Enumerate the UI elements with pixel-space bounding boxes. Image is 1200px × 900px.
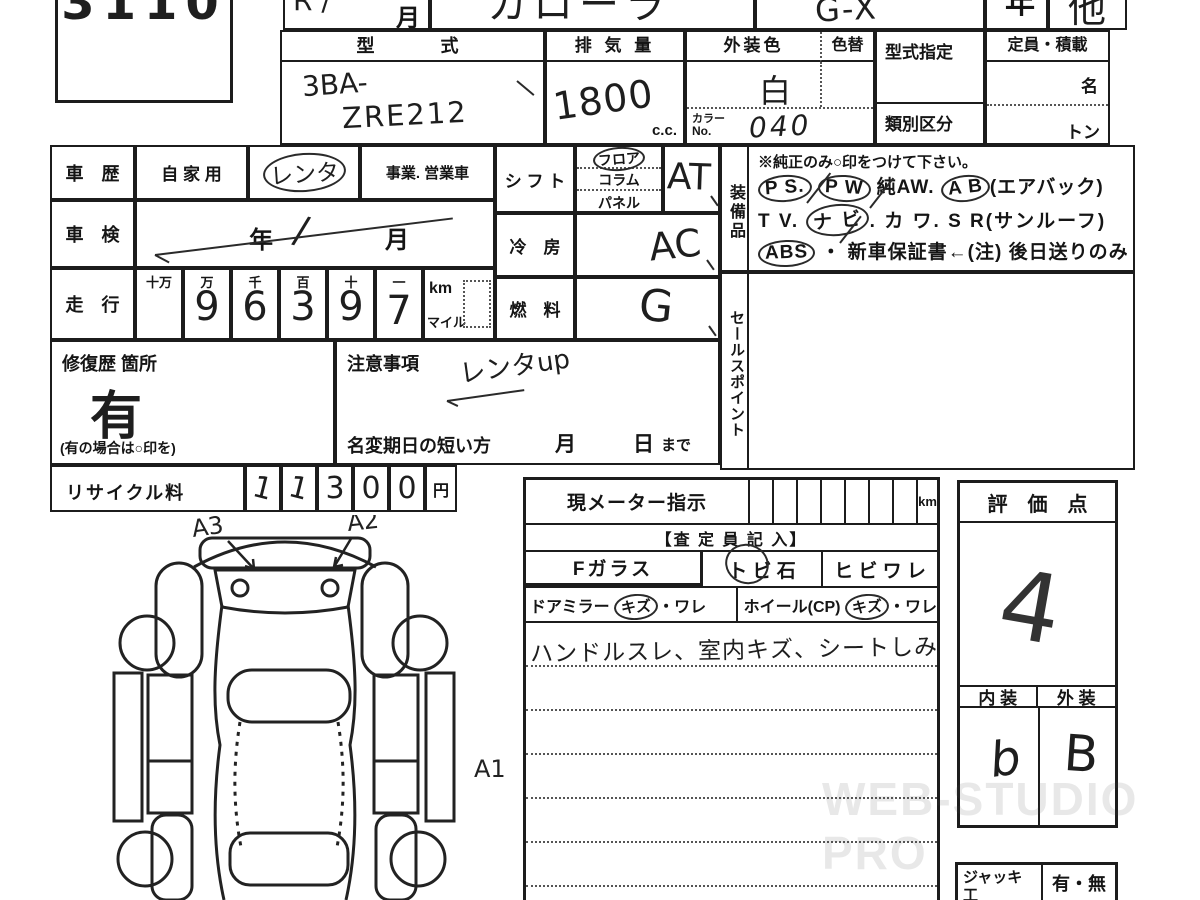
meter-digit-box (844, 480, 868, 523)
history-rental: レンタ (248, 145, 360, 200)
fuel-label-text: 燃 料 (510, 296, 561, 321)
equip-ps: P S. (757, 173, 812, 204)
recycle-digit-cell: 3 (317, 465, 353, 512)
history-private-text: 自 家 用 (161, 160, 221, 185)
meter-km-label: km (918, 494, 937, 509)
score-header: 評 価 点 (960, 483, 1115, 523)
inspector-header-text: 【査 定 員 記 入】 (656, 526, 808, 550)
front-glass-label: Fガラス (526, 552, 703, 586)
other-cell: 他 (1048, 0, 1127, 30)
other-hand: 他 (1068, 0, 1106, 30)
lot-number: 3110 (58, 0, 230, 31)
score-header-text: 評 価 点 (988, 488, 1088, 517)
history-commercial: 事業. 営業車 (360, 145, 495, 200)
class-division-label: 類別区分 (885, 110, 953, 135)
equip-kawa: . カ ワ. (870, 211, 941, 232)
front-bumper-arc (194, 542, 376, 567)
history-private: 自 家 用 (135, 145, 248, 200)
exterior-color-value: 白 (759, 66, 791, 112)
type-designation-cell: 型式指定 類別区分 (875, 30, 985, 145)
history-commercial-text: 事業. 営業車 (386, 162, 469, 183)
interior-label: 内 装 (960, 687, 1038, 706)
damage-code-a2: A2 (346, 515, 380, 537)
wheel-crack: ・ワレ (889, 599, 937, 616)
recycle-digit-cell: 1 (245, 465, 281, 512)
mirror-wheel-row: ドアミラー キズ・ワレ ホイール(CP) キズ・ワレ (526, 588, 937, 623)
name-change-made: まで (661, 434, 691, 455)
equip-abs: ABS (758, 239, 816, 268)
meter-digit-box (892, 480, 916, 523)
equipment-line3: ABS ・ 新車保証書←(注) 後日送りのみ (758, 237, 1129, 267)
tool-label: 工 具 (963, 884, 1041, 900)
inspection-slash-hand: / (290, 207, 313, 253)
color-no-value: 040 (748, 108, 812, 144)
year-label: 年 (1005, 0, 1035, 22)
mileage-digit: 9 (329, 284, 373, 330)
divider (687, 107, 873, 109)
shift-value-cell: AT (663, 145, 720, 213)
first-registration-cell: R / 月 (283, 0, 430, 30)
displacement-value: 1800 (550, 71, 656, 129)
inspector-note-row: ハンドルスレ、室内キズ、シートしみ (526, 623, 937, 667)
recycle-yen-cell: 円 (425, 465, 457, 512)
empty-note-row (526, 711, 937, 755)
capacity-label: 定員・積載 (987, 32, 1108, 62)
equip-tv: T V. (758, 211, 799, 232)
ac-value-hand: AC (647, 220, 703, 269)
year-cell: 年 (985, 0, 1048, 30)
shift-value-hand: AT (666, 156, 711, 199)
mile-label: マイル (427, 312, 466, 331)
hand-arrow-head (155, 254, 170, 263)
fuel-value-cell: G (575, 277, 720, 340)
damage-code-a3: A3 (190, 515, 225, 543)
fuel-label: 燃 料 (495, 277, 575, 340)
right-sill-panel (426, 673, 454, 821)
mileage-label-text: 走 行 (66, 291, 120, 317)
equip-warranty: ・ 新車保証書←(注) 後日送りのみ (821, 242, 1128, 263)
equipment-side-label: 装備品 (722, 147, 749, 270)
grade-cell: G-X (755, 0, 985, 30)
yen-label: 円 (433, 477, 449, 501)
left-sill-panel (114, 673, 142, 821)
front-windshield (228, 670, 350, 722)
front-left-wheel (120, 616, 174, 670)
exterior-label-text: 外 装 (1057, 684, 1096, 709)
door-mirror-label: ドアミラー (530, 599, 610, 616)
meter-digit-box (796, 480, 820, 523)
recycle-digit: 1 (286, 469, 313, 508)
recycle-digit-cell: 0 (389, 465, 425, 512)
empty-note-row (526, 667, 937, 711)
ac-value-cell: AC (575, 213, 720, 277)
mileage-col-1: 一 7 (375, 268, 423, 340)
mileage-col-1k: 千 6 (231, 268, 279, 340)
hand-tick (708, 325, 717, 336)
crack-text: ヒ ビ ワ レ (834, 556, 926, 583)
mileage-col-10k: 万 9 (183, 268, 231, 340)
mileage-unit-cell: km マイル (423, 268, 495, 340)
displacement-cell: 排 気 量 1800 c.c. (545, 30, 685, 145)
score-value: 4 (991, 549, 1070, 668)
interior-exterior-header: 内 装 外 装 (960, 685, 1115, 708)
divider (987, 104, 1108, 106)
rear-right-wheel (391, 832, 445, 886)
hand-arrow-line (447, 389, 525, 402)
recycle-fee-label: リサイクル料 (66, 479, 185, 505)
hand-tick (516, 80, 534, 96)
history-label: 車 歴 (50, 145, 135, 200)
history-label-text: 車 歴 (66, 160, 120, 186)
car-damage-diagram: A3 A2 A1 (90, 515, 510, 900)
model-name-hand: カローラ (487, 0, 671, 30)
mileage-col-10: 十 9 (327, 268, 375, 340)
km-label: km (429, 280, 452, 298)
cowl-panel (215, 570, 355, 613)
right-rear-fender (376, 815, 416, 900)
watermark: WEB-STUDIO PRO (822, 772, 1200, 880)
door-mirror-cell: ドアミラー キズ・ワレ (526, 588, 738, 621)
grade-hand: G-X (814, 0, 879, 30)
exterior-color-cell: 外装色 色替 白 カラー No. 040 (685, 30, 875, 145)
rear-windshield (230, 833, 348, 885)
meter-km-cell: km (916, 480, 937, 523)
model-code-line2: ZRE212 (341, 95, 468, 136)
mile-checkbox (463, 280, 491, 328)
crack-label: ヒ ビ ワ レ (821, 552, 937, 586)
wheel-label: ホイール(CP) (744, 599, 841, 616)
displacement-label: 排 気 量 (547, 32, 683, 62)
interior-label-text: 内 装 (978, 684, 1017, 709)
meter-digit-box (868, 480, 892, 523)
equipment-note: ※純正のみ○印をつけて下さい。 (758, 151, 977, 172)
month-label: 月 (396, 0, 420, 30)
meter-digit-box (772, 480, 796, 523)
meter-row: 現メーター指示 km (526, 480, 937, 525)
meter-label-text: 現メーター指示 (567, 488, 707, 515)
wheel-cell: ホイール(CP) キズ・ワレ (738, 588, 937, 621)
shift-opt-floor: フロア (577, 147, 661, 169)
washer-dot (232, 580, 248, 596)
model-code-cell: 型 式 3BA- ZRE212 (280, 30, 545, 145)
repair-history-cell: 修復歴 箇所 有 (有の場合は○印を) (50, 340, 335, 465)
equipment-line2: T V. ナ ビ. カ ワ. S R(サンルーフ) (758, 204, 1106, 236)
type-designation-label: 型式指定 (885, 38, 953, 63)
recycle-digit: 0 (361, 471, 380, 506)
ac-label: 冷 房 (495, 213, 575, 277)
equip-navi: ナ ビ (805, 201, 871, 238)
equip-sr: S R(サンルーフ) (948, 211, 1106, 232)
exterior-label: 外 装 (1038, 687, 1116, 706)
front-glass-text: Fガラス (573, 554, 653, 581)
mileage-col-100: 百 3 (279, 268, 327, 340)
name-change-day: 日 (633, 428, 654, 458)
inspection-year: 年 (249, 220, 273, 255)
hand-tick (710, 195, 719, 206)
auction-sheet: 3110 R / 月 カローラ G-X 年 他 型 式 3BA- ZRE212 … (0, 0, 1200, 900)
rear-left-wheel (118, 832, 172, 886)
left-door-panel (148, 675, 192, 813)
model-code-line1: 3BA- (301, 66, 369, 104)
displacement-unit: c.c. (652, 122, 677, 139)
mileage-digit: 6 (233, 284, 277, 330)
meter-label: 現メーター指示 (526, 480, 748, 523)
inspector-note-hand: ハンドルスレ、室内キズ、シートしみ (530, 627, 939, 668)
capacity-cell: 定員・積載 名 トン (985, 30, 1110, 145)
ac-label-text: 冷 房 (510, 233, 561, 258)
door-mirror-crack: ・ワレ (658, 599, 706, 616)
meter-digit-box (748, 480, 772, 523)
sales-point-box: セールスポイント (720, 272, 1135, 470)
sales-point-side-label: セールスポイント (722, 274, 749, 468)
shift-opt-panel: パネル (577, 191, 661, 215)
fuel-value-hand: G (636, 279, 675, 333)
remarks-label: 注意事項 (347, 350, 419, 376)
name-change-month: 月 (555, 428, 576, 458)
glass-row: Fガラス ト ビ 石 ヒ ビ ワ レ (526, 552, 937, 588)
mileage-digit: 3 (281, 284, 325, 330)
a2-arrow (334, 537, 352, 567)
mileage-col-label: 十万 (137, 272, 181, 291)
model-code-label: 型 式 (282, 32, 543, 62)
recycle-digit: 1 (250, 469, 277, 508)
recycle-fee-label-cell: リサイクル料 (50, 465, 245, 512)
color-no-label2: No. (692, 124, 711, 138)
stone-chip-label: ト ビ 石 (703, 552, 821, 586)
shift-label: シ フ ト (495, 145, 575, 213)
damage-code-a1: A1 (474, 755, 506, 783)
shift-label-text: シ フ ト (505, 167, 565, 192)
inspection-label-text: 車 検 (66, 221, 120, 247)
right-front-fender (362, 563, 408, 677)
mileage-digit: 9 (185, 284, 229, 330)
hand-tick (706, 259, 715, 270)
washer-dot (322, 580, 338, 596)
recycle-digit: 0 (397, 471, 416, 506)
repair-history-label: 修復歴 箇所 (62, 350, 157, 376)
mileage-digit: 7 (377, 288, 421, 334)
divider (877, 102, 983, 104)
history-rental-hand: レンタ (261, 150, 347, 195)
shift-opt-column: コラム (577, 169, 661, 191)
recycle-digit: 3 (325, 471, 344, 506)
right-door-panel (374, 675, 418, 813)
lot-number-box: 3110 (55, 0, 233, 103)
left-door-line (235, 722, 241, 847)
door-mirror-scratch: キズ (613, 592, 659, 621)
capacity-unit-persons: 名 (1081, 72, 1098, 97)
exterior-color-label: 外装色 (687, 32, 820, 62)
recycle-digit-cell: 1 (281, 465, 317, 512)
equip-ab: A B (940, 173, 992, 205)
equip-airbag: (エアバック) (990, 177, 1104, 198)
divider (820, 62, 822, 107)
recycle-digit-cell: 0 (353, 465, 389, 512)
front-right-wheel (393, 616, 447, 670)
repair-history-note: (有の場合は○印を) (60, 438, 176, 458)
model-name-cell: カローラ (430, 0, 755, 30)
remarks-hand: レンタup (457, 338, 572, 390)
color-change-label: 色替 (820, 32, 873, 62)
capacity-unit-tons: トン (1066, 118, 1100, 143)
right-door-line (337, 722, 343, 847)
meter-digit-box (820, 480, 844, 523)
remarks-cell: 注意事項 レンタup 名変期日の短い方 月 日 まで (335, 340, 720, 465)
equipment-box: 装備品 ※純正のみ○印をつけて下さい。 P S. P W 純AW. A B(エア… (720, 145, 1135, 272)
shift-options: フロア コラム パネル (575, 145, 663, 213)
first-registration-hand: R / (293, 0, 331, 17)
inspection-value: 年 / 月 (135, 200, 495, 268)
name-change-label: 名変期日の短い方 (347, 432, 491, 458)
mileage-label: 走 行 (50, 268, 135, 340)
wheel-scratch: キズ (844, 592, 890, 621)
mileage-col-100k: 十万 (135, 268, 183, 340)
inspection-label: 車 検 (50, 200, 135, 268)
